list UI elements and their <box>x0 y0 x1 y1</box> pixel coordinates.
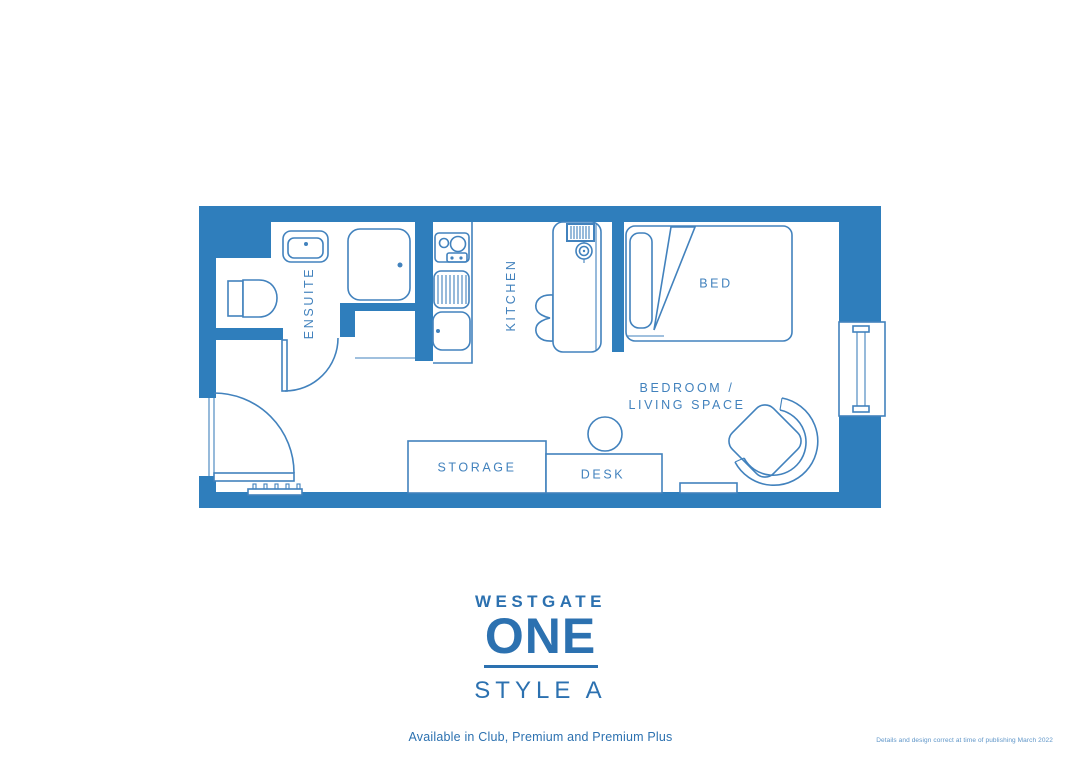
radiator <box>248 484 302 495</box>
dining-chair <box>536 295 553 341</box>
sideboard <box>680 483 737 493</box>
kitchen-drainer <box>434 271 469 308</box>
bedroom-label-line1: BEDROOM / <box>628 380 745 397</box>
desk-label: DESK <box>581 467 625 484</box>
brand-rule <box>484 665 598 668</box>
ensuite-door <box>282 338 338 391</box>
brand-logo: WESTGATE ONE STYLE A Available in Club, … <box>0 592 1081 744</box>
ensuite-label: ENSUITE <box>303 267 316 339</box>
bedroom-label: BEDROOM / LIVING SPACE <box>628 380 745 414</box>
storage-label: STORAGE <box>437 460 516 477</box>
bedroom-label-line2: LIVING SPACE <box>628 397 745 414</box>
toilet <box>228 280 277 317</box>
shower <box>348 229 410 300</box>
brand-wordmark-main: ONE <box>0 613 1081 659</box>
kitchen-hob <box>435 233 469 262</box>
ensuite-sink <box>283 231 328 262</box>
desk-chair <box>588 417 622 451</box>
kitchen-label: KITCHEN <box>505 258 518 331</box>
entry-door <box>209 393 294 481</box>
publishing-footnote: Details and design correct at time of pu… <box>876 737 1053 744</box>
kitchen-sink <box>433 312 470 350</box>
bed-label: BED <box>699 276 733 293</box>
window <box>839 322 885 416</box>
style-name: STYLE A <box>0 677 1081 705</box>
page: ENSUITE KITCHEN BED BEDROOM / LIVING SPA… <box>0 0 1081 767</box>
